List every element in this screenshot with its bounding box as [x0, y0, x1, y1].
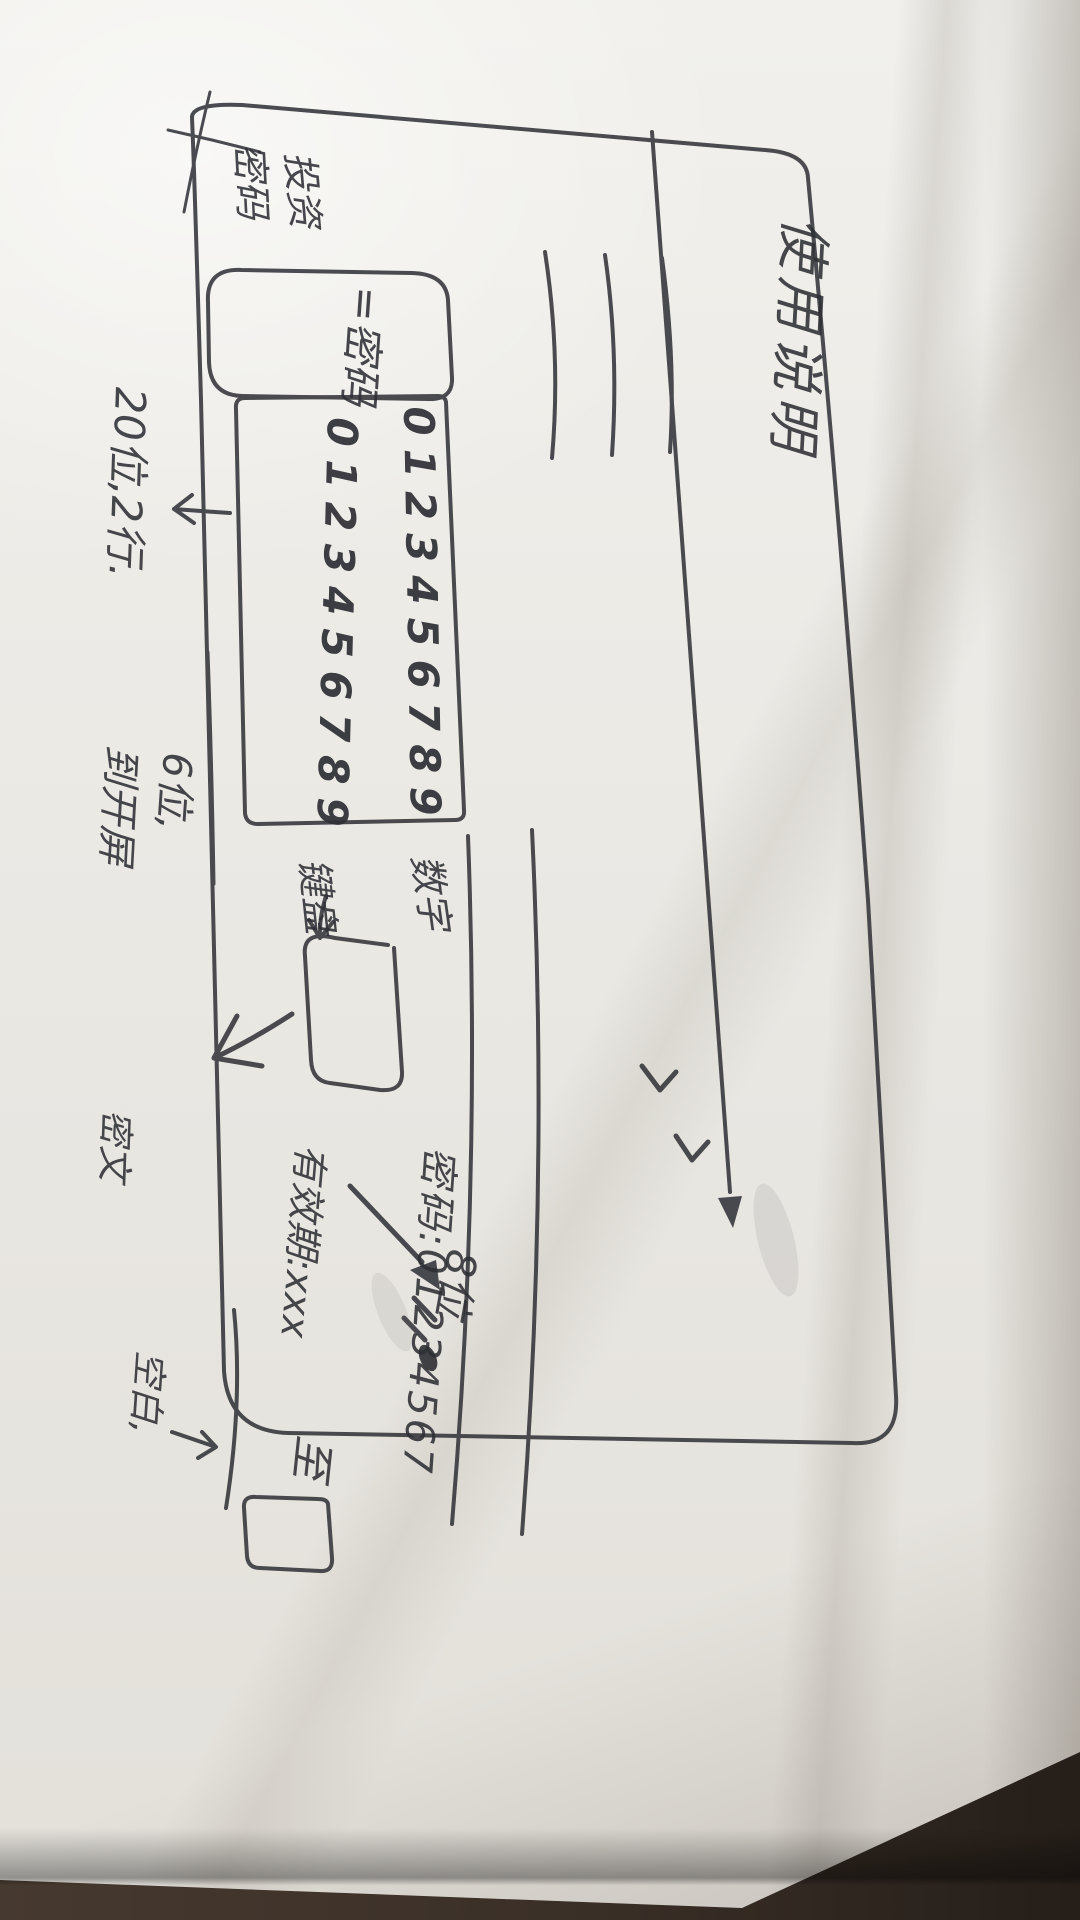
text-line	[545, 252, 555, 458]
header-divider-line	[652, 132, 730, 1192]
photo-of-hand-drawn-wireframe: { "colors": { "floor": "#3a2f27", "paper…	[0, 0, 1080, 1920]
password-field-label: =密码	[336, 285, 388, 407]
keypad-digits-row1: 0123456789	[396, 406, 447, 829]
divider-chevron-icon	[642, 1066, 676, 1090]
ruled-line	[522, 830, 539, 1534]
blank-underline	[226, 1310, 237, 1508]
arrow-up-icon	[172, 1432, 216, 1458]
divider-arrowhead-icon	[718, 1196, 742, 1228]
note-button-flow-row1: 6位,	[151, 751, 198, 832]
keypad-side-label-row1: 数字	[404, 852, 454, 933]
divider-chevron-icon	[676, 1136, 708, 1160]
page-title: 使用说明	[763, 215, 832, 458]
keypad-side-label-row2: 键盘	[292, 856, 340, 936]
password-field-box	[208, 270, 452, 399]
note-button-flow-row2: 到开屏	[94, 744, 142, 866]
note-masked: 密文	[94, 1109, 134, 1182]
arrow-down-icon	[214, 1014, 292, 1066]
note-password-length: 8位	[429, 1246, 484, 1321]
ink-strokes	[0, 0, 1080, 1920]
note-keypad-size: 20位,2行.	[101, 386, 152, 578]
wireframe-sketch: 使用说明 投资 密码 =密码 0123456789 0123456789 数字 …	[0, 0, 1080, 1920]
password-label-row2: 密码	[228, 142, 272, 220]
note-until: 至	[285, 1433, 336, 1482]
password-label-row1: 投资	[278, 150, 324, 229]
note-blank: 空白,	[124, 1349, 168, 1435]
smudge	[745, 1179, 808, 1300]
action-button-box	[305, 936, 402, 1090]
blank-box	[244, 1497, 332, 1571]
keypad-digits-row2: 0123456789	[309, 417, 364, 840]
text-line	[605, 255, 614, 455]
